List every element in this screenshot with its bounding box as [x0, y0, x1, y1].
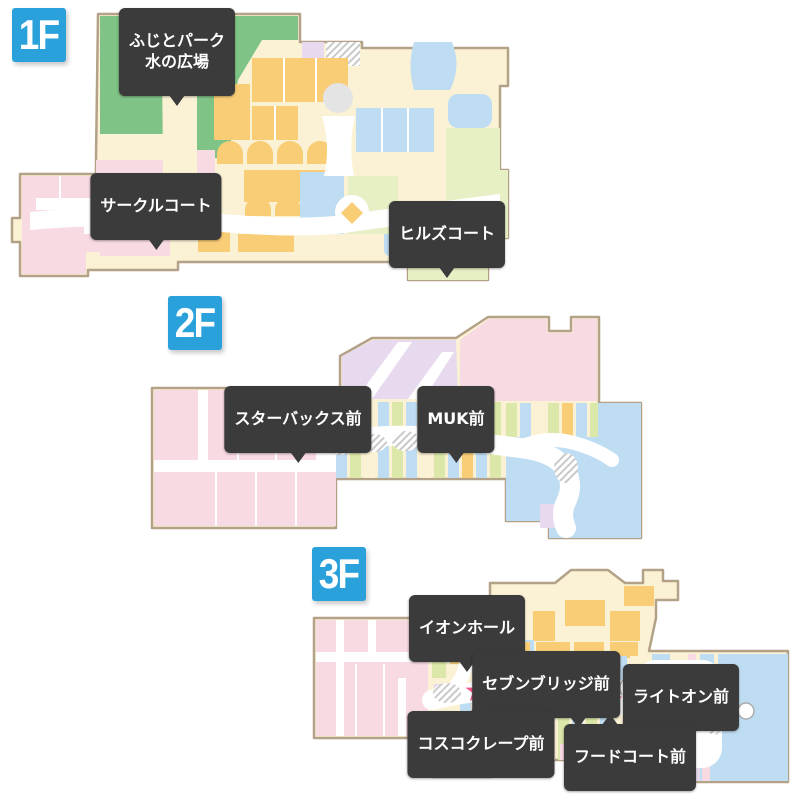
floor-badge-3f: 3F: [312, 547, 366, 601]
plaza-circle: [323, 83, 353, 113]
floor-map-1f: [4, 2, 516, 290]
floor-badge-1f: 1F: [12, 8, 66, 62]
mall-floor-guide-map: 1F 2F 3F ★ ふじとパーク 水の広場 ★ サークルコート ★ ヒルズコー…: [0, 0, 800, 800]
floor-map-2f: [148, 312, 648, 544]
floor-map-3f: [310, 558, 794, 790]
floor-badge-2f: 2F: [168, 296, 222, 350]
